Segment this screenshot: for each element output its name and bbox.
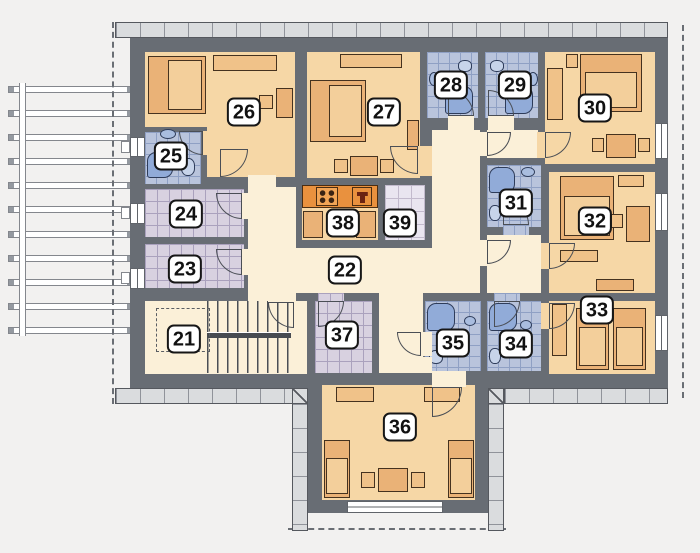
balcony-beam — [8, 134, 133, 141]
sink-icon — [521, 167, 535, 177]
roof-outline-dashed-left — [112, 22, 114, 404]
window — [130, 203, 145, 224]
facade-band-top — [115, 22, 668, 38]
window-sill — [121, 207, 130, 219]
door-opening — [248, 175, 276, 189]
room-label-38: 38 — [326, 209, 360, 238]
window-sill — [121, 272, 130, 284]
chair — [611, 214, 623, 228]
bed — [148, 56, 206, 114]
kitchen-sink-icon — [352, 187, 372, 206]
door-opening — [537, 132, 545, 158]
floor-plan: 21 22 23 24 25 26 27 28 29 30 31 32 33 3… — [0, 0, 700, 553]
door-opening — [418, 146, 432, 176]
table — [276, 88, 293, 118]
facade-band-corner — [292, 388, 308, 404]
door-opening — [421, 332, 432, 356]
stove-icon — [316, 187, 338, 206]
table — [378, 468, 408, 492]
room-label-21: 21 — [167, 325, 201, 354]
room-label-35: 35 — [436, 329, 470, 358]
room-label-27: 27 — [367, 98, 401, 127]
door-opening — [203, 131, 212, 155]
door-opening — [541, 243, 549, 269]
chair — [380, 159, 394, 173]
facade-band-corner — [488, 388, 504, 404]
wardrobe — [340, 54, 402, 68]
door-opening — [488, 116, 514, 130]
door-opening — [479, 132, 487, 156]
room-label-31: 31 — [499, 189, 533, 218]
door-opening — [318, 293, 344, 301]
chair — [411, 472, 425, 488]
facade-band-annex-right — [488, 403, 504, 531]
sofa — [596, 279, 634, 291]
stairs-rail — [207, 332, 291, 338]
window — [655, 193, 668, 231]
window — [130, 268, 145, 289]
room-label-32: 32 — [578, 207, 612, 236]
room-label-34: 34 — [499, 330, 533, 359]
door-opening — [503, 225, 529, 235]
door-opening — [494, 293, 520, 301]
roof-outline-dashed-right — [682, 25, 684, 398]
room-label-28: 28 — [434, 71, 468, 100]
window — [130, 137, 145, 157]
balcony-rail — [19, 83, 26, 336]
facade-band-bottom-left — [115, 388, 293, 404]
chair — [334, 159, 348, 173]
room-label-22: 22 — [328, 256, 362, 285]
room-label-26: 26 — [227, 98, 261, 127]
door-opening — [268, 288, 296, 302]
bed — [324, 440, 350, 498]
wardrobe — [547, 68, 563, 120]
shower-icon — [427, 303, 455, 331]
door-opening — [432, 371, 466, 387]
table — [606, 134, 636, 158]
terrace-outline-dashed — [288, 528, 506, 530]
room-label-36: 36 — [383, 413, 417, 442]
door-opening — [479, 240, 487, 266]
room-label-25: 25 — [154, 142, 188, 171]
balcony-beam — [8, 279, 133, 286]
nightstand — [566, 54, 578, 68]
door-opening — [423, 357, 432, 373]
balcony-beam — [8, 303, 133, 310]
bed — [613, 308, 646, 370]
room-label-30: 30 — [578, 94, 612, 123]
balcony-beam — [8, 182, 133, 189]
room-label-33: 33 — [580, 296, 614, 325]
door-opening — [242, 249, 250, 275]
balcony-beam — [8, 110, 133, 117]
balcony-beam — [8, 206, 133, 213]
balcony-beam — [8, 86, 133, 93]
sink-icon — [160, 129, 176, 139]
bed — [448, 440, 474, 498]
facade-band-annex-left — [292, 403, 308, 531]
table — [626, 206, 650, 242]
sink-icon — [520, 320, 532, 330]
bed — [310, 80, 366, 142]
window — [347, 501, 443, 513]
balcony-beam — [8, 158, 133, 165]
room-label-37: 37 — [325, 321, 359, 350]
chair — [361, 472, 375, 488]
cabinet — [303, 211, 323, 238]
door-opening — [541, 303, 549, 329]
wardrobe — [213, 55, 277, 71]
room-label-24: 24 — [169, 200, 203, 229]
room-22-hallway-east — [432, 130, 480, 293]
room-label-29: 29 — [498, 71, 532, 100]
chair — [259, 95, 273, 109]
balcony-beam — [8, 231, 133, 238]
room-label-23: 23 — [168, 255, 202, 284]
window — [655, 123, 668, 159]
balcony-beam — [8, 327, 133, 334]
room-label-39: 39 — [383, 209, 417, 238]
sink-icon — [464, 316, 476, 326]
window — [655, 315, 668, 351]
cabinet — [336, 387, 374, 402]
nightstand — [618, 175, 644, 187]
balcony-beam — [8, 255, 133, 262]
facade-band-bottom-right — [504, 388, 668, 404]
table — [350, 156, 378, 176]
chair — [638, 138, 650, 152]
door-opening — [448, 116, 474, 130]
door-opening — [242, 193, 250, 219]
window-sill — [121, 141, 130, 153]
chair — [592, 138, 604, 152]
